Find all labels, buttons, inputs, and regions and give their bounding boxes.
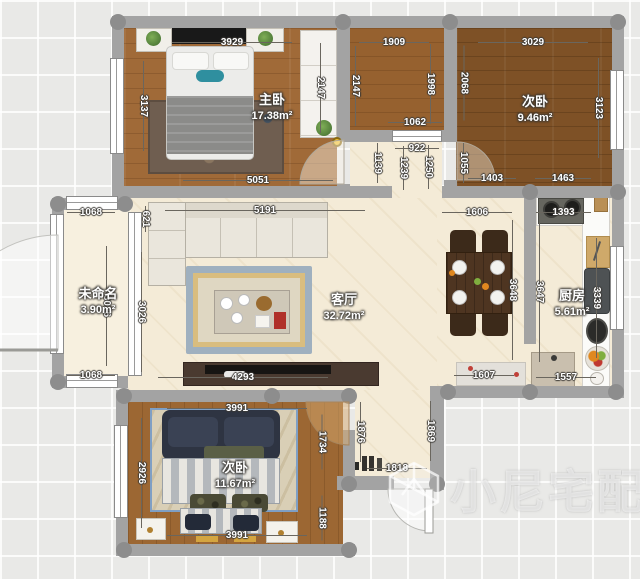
tray-decor <box>255 315 270 328</box>
wall <box>444 16 457 142</box>
dim-living-top: 5191 <box>165 203 365 217</box>
room-label-bedroom3: 次卧11.67m² <box>203 460 267 491</box>
dim-bedroom2-top: 3029 <box>478 35 588 49</box>
wall <box>444 180 457 198</box>
room-label-master: 主卧17.38m² <box>240 92 304 123</box>
wall-joint <box>50 196 66 212</box>
dim-hallway-bottom: 1818 <box>367 461 427 475</box>
dim-master-left: 3137 <box>137 61 151 151</box>
wall <box>116 544 355 556</box>
dim-bedroom2-bottom-left: 1403 <box>468 171 516 185</box>
food-decor <box>482 283 489 290</box>
dim-balcony-top: 1068 <box>67 205 115 219</box>
room-label-balcony: 未命名3.90m² <box>66 286 130 317</box>
wall-joint <box>110 14 126 30</box>
fridge-handle <box>551 355 557 361</box>
dim-bedroom3-left: 2926 <box>135 418 149 528</box>
smart-device-icon[interactable] <box>332 137 342 147</box>
plate <box>452 290 467 305</box>
dim-corridor-mid-right: 1250 <box>422 145 436 189</box>
wall-joint <box>610 14 626 30</box>
plate <box>238 294 250 306</box>
room-label-kitchen: 厨房5.61m² <box>540 288 604 319</box>
wall-joint <box>50 374 66 390</box>
dim-master-top: 3929 <box>172 35 292 49</box>
window[interactable] <box>110 58 124 154</box>
window[interactable] <box>610 246 624 330</box>
dim-bath-right: 1998 <box>424 44 438 124</box>
dim-bath-top: 1909 <box>359 35 429 49</box>
wall-joint <box>341 542 357 558</box>
entry-door-arc <box>388 489 430 531</box>
dining-chair[interactable] <box>450 311 476 336</box>
red-box-decor <box>274 312 286 329</box>
dim-balcony-niche: 621 <box>139 206 153 232</box>
plate <box>490 260 505 275</box>
dim-master-right: 2147 <box>314 43 328 133</box>
dim-master-bottom: 5051 <box>183 173 333 187</box>
wall-joint <box>117 196 133 212</box>
food-decor <box>474 278 481 285</box>
dim-bedroom3-right: 1188 <box>316 496 330 541</box>
dim-corridor-mid-left: 1239 <box>397 146 411 190</box>
dim-hallway-right: 1869 <box>424 401 438 461</box>
wall <box>112 186 392 198</box>
food-decor <box>449 270 455 276</box>
dim-bedroom2-left: 2068 <box>458 46 472 121</box>
wall-joint <box>116 542 132 558</box>
plate <box>231 312 243 324</box>
dim-bedroom3-bottom: 3991 <box>167 528 307 542</box>
plate <box>220 297 233 310</box>
floorplan-canvas[interactable]: 3929 5051 1909 1062 3029 1403 1463 922 1… <box>0 0 640 579</box>
room-label-bedroom2: 次卧9.46m² <box>503 94 567 125</box>
dim-hallway-left: 1876 <box>354 402 368 462</box>
bed-pillow <box>172 52 209 70</box>
dim-bath-left: 2147 <box>349 46 363 126</box>
bed-accent-pillow <box>196 70 224 82</box>
wall-joint <box>440 384 456 400</box>
dining-chair[interactable] <box>482 311 508 336</box>
dim-dining-right: 3648 <box>506 220 520 360</box>
dim-corridor-left: 1139 <box>371 143 385 183</box>
dim-balcony-bottom: 1068 <box>67 368 115 382</box>
dim-living-bottom: 4293 <box>158 370 328 384</box>
wall-joint <box>335 14 351 30</box>
wall-joint <box>608 384 624 400</box>
wall <box>337 184 350 198</box>
dim-balcony-right: 3026 <box>135 252 149 372</box>
teddy-decor <box>256 296 272 311</box>
dim-dining-top: 1606 <box>442 205 512 219</box>
wall-joint <box>341 476 357 492</box>
wall-joint <box>442 14 458 30</box>
plant-icon[interactable] <box>146 31 161 46</box>
window[interactable] <box>114 425 128 518</box>
window[interactable] <box>50 214 64 354</box>
dim-dining-bottom: 1607 <box>454 368 514 382</box>
dim-bedroom3-door: 1734 <box>316 415 330 470</box>
wall-joint <box>429 476 445 492</box>
mat-flower-decor <box>514 372 519 377</box>
bed-pillow <box>213 52 249 70</box>
dim-bedroom3-top: 3991 <box>167 401 307 415</box>
dim-kitchen-top: 1393 <box>536 205 591 219</box>
wall <box>112 16 624 28</box>
window[interactable] <box>610 70 624 150</box>
wall-joint <box>522 384 538 400</box>
dim-kitchen-bottom: 1557 <box>536 370 596 384</box>
plate <box>490 290 505 305</box>
bed-pillow <box>168 417 218 447</box>
dim-bedroom2-bottom-right: 1463 <box>535 171 591 185</box>
bed-pillow <box>224 417 274 447</box>
dim-corridor-right: 1055 <box>457 143 471 183</box>
room-label-living: 客厅32.72m² <box>312 292 376 323</box>
dim-bedroom2-right: 3123 <box>592 58 606 158</box>
entry-door-leaf <box>425 489 433 533</box>
wall-joint <box>610 184 626 200</box>
wall-joint <box>116 388 132 404</box>
wall-joint <box>522 184 538 200</box>
